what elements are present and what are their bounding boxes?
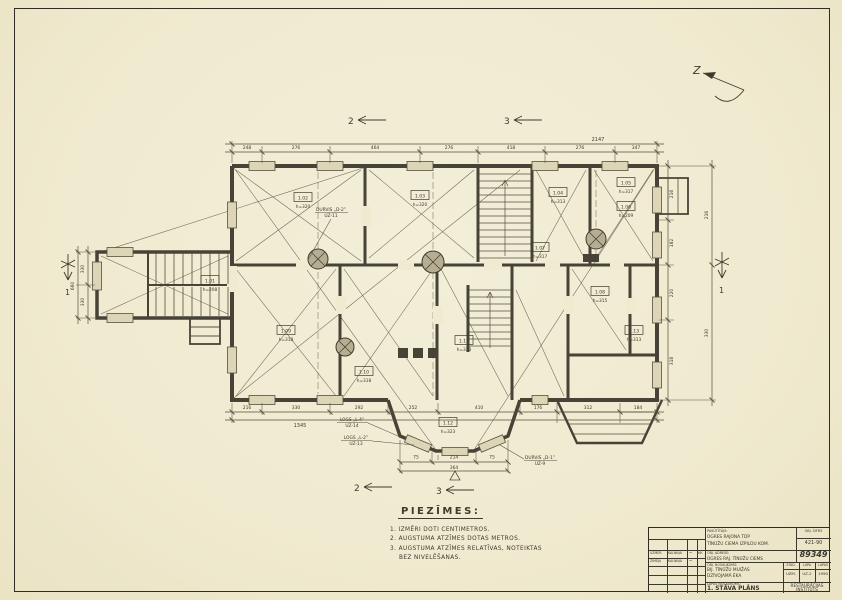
stair-lower [469,290,511,348]
room-label: 1.08h=315 [591,287,609,305]
note-line: BEZ NIVELĒŠANAS. [390,554,542,563]
svg-text:1: 1 [65,288,70,297]
dim-number: 176 [534,405,543,411]
dim-number: 220 [669,289,675,298]
stage-label: STAD. [783,564,799,567]
room-label: 1.03h=320 [411,191,429,209]
sig-name: KALNIŅA [668,560,682,563]
sheets-value: 1990 [815,572,831,576]
dim-number: 75 [489,455,495,461]
dim-number: 75 [413,455,419,461]
stoves [308,229,606,356]
title-block-divider [697,539,698,593]
dim-number: 216 [704,211,710,220]
dim-number: 248 [243,145,252,151]
archive-number: 89349 [796,551,831,559]
sheet-label: LAPA [799,564,815,567]
svg-text:UZ-13: UZ-13 [349,441,362,447]
dim-total: 364 [450,465,459,471]
sig-role: ZĪMĒJA [650,560,661,563]
svg-text:3: 3 [504,117,510,127]
stage-value: UZM. [783,572,799,576]
notes-list: 1. IZMĒRI DOTI CENTIMETROS. 2. AUGSTUMA … [390,526,542,563]
dim-number: 216 [243,405,252,411]
note-line: 2. AUGSTUMA ATZĪMES DOTAS METROS. [390,535,542,544]
dim-number: 330 [292,405,301,411]
notes-block: PIEZĪMES: 1. IZMĒRI DOTI CENTIMETROS. 2.… [390,499,542,563]
svg-text:DURVIS „D-1”: DURVIS „D-1” [525,455,555,461]
sheet-number: UZ-2 [799,572,815,576]
dim-number: 410 [475,405,484,411]
svg-text:3: 3 [436,487,442,497]
dim-number: 276 [292,145,301,151]
address-label: OBJ. ADRESE: [707,552,729,555]
object-label: OBJ. NOSAUKUMS: [707,564,737,567]
dim-numbers: 248 276 464 276 418 276 347 2147 216 330… [70,137,710,471]
svg-text:LOGS „L-4”: LOGS „L-4” [340,417,364,423]
sheets-label: LAPAS [815,564,831,567]
north-fletching-icon [715,90,744,101]
svg-text:UZ-14: UZ-14 [345,423,358,429]
sig-role: UZMĒR. [650,552,662,555]
stair-upper [479,174,531,258]
svg-text:2: 2 [348,117,354,127]
door-label-d1: DURVIS „D-1” UZ-9 [500,445,557,467]
exterior-walls [232,166,657,400]
drawing-title: 1. STĀVA PLĀNS [707,587,760,593]
sig-signature: ~ [689,559,692,563]
object-code-label: OBJ. ŠIFRS [796,530,831,533]
svg-text:UZ-11: UZ-11 [324,213,337,219]
svg-text:DURVIS „D-2”: DURVIS „D-2” [316,207,346,213]
title-block: UZMĒR. KALNIŅA ~ HK ZĪMĒJA KALNIŅA ~ PAS… [648,527,830,592]
svg-text:1: 1 [719,286,724,295]
room-label: 1.04h=313 [549,188,567,206]
client-label: PASŪTĪTĀJS: [707,530,728,533]
section-marker-bottom-3: 3 [436,486,474,497]
client-line1: OGRES RAJONA TDP [707,536,750,540]
dim-number: 182 [669,239,675,248]
svg-text:1.02: 1.02 [298,196,308,202]
svg-text:h=323: h=323 [441,429,456,435]
room-label: 1.06h=209 [617,202,635,220]
dim-number: 216 [669,190,675,199]
note-line: 3. AUGSTUMA ATZĪMES RELATĪVAS, NOTEIKTAS [390,545,542,554]
dim-chain-top [225,141,664,163]
dim-number: 347 [632,145,641,151]
svg-text:h=320: h=320 [296,204,311,210]
dim-number: 330 [704,329,710,338]
svg-text:1.05: 1.05 [621,181,631,187]
svg-text:1.07: 1.07 [535,246,545,252]
section-marker-right-1: 1 [715,252,729,295]
svg-text:h=313: h=313 [627,337,642,343]
svg-text:h=320: h=320 [413,202,428,208]
svg-text:1.12: 1.12 [443,421,453,427]
sig-name: KALNIŅA [668,552,682,555]
sig-date: HK [698,552,703,555]
svg-text:1.06: 1.06 [621,205,631,211]
room-label: 1.02h=320 [294,193,312,211]
room-label: 1.13h=313 [625,326,643,344]
svg-text:1.03: 1.03 [415,194,425,200]
address: OGRES RAJ. TĪNŪŽU CIEMS [707,557,763,561]
svg-text:1.13: 1.13 [629,329,639,335]
svg-text:h=323: h=323 [457,347,472,353]
svg-text:1.08: 1.08 [595,290,605,296]
dim-number: 292 [355,405,364,411]
section-marker-top-2: 2 [348,116,386,127]
svg-text:h=318: h=318 [357,378,372,384]
svg-text:1.01: 1.01 [205,279,215,285]
svg-text:h=313: h=313 [551,199,566,205]
dim-number: 252 [409,405,418,411]
sig-signature: ~ [689,551,692,555]
dim-number: 330 [80,298,86,307]
window-openings [93,162,662,456]
organization-line2: INSTITŪTS [783,588,831,592]
exterior-steps [190,318,220,344]
room-label: 1.11h=323 [455,336,473,354]
section-marker-bottom-2: 2 [354,483,392,494]
dim-chain-left [76,246,96,324]
dim-number: 276 [576,145,585,151]
dim-number: 312 [584,405,593,411]
svg-text:h=317: h=317 [533,254,548,260]
dim-number: 418 [507,145,516,151]
title-block-divider [783,569,831,570]
object-code: 421-90 [796,541,831,546]
dim-total: 660 [70,282,76,291]
svg-text:h=318: h=318 [279,337,294,343]
dim-number: 318 [669,357,675,366]
svg-text:1.10: 1.10 [359,370,369,376]
object-line1: BIJ. TĪNŪŽU MUIŽAS [707,569,750,573]
title-block-divider [705,528,706,593]
room-label: 1.05h=317 [617,178,635,196]
svg-text:1.04: 1.04 [553,191,563,197]
drawing-sheet: 248 276 464 276 418 276 347 2147 216 330… [0,0,842,600]
notes-heading: PIEZĪMES: [398,506,483,519]
title-block-divider [796,538,831,539]
room-label: 1.09h=318 [277,326,295,344]
object-line2: DZĪVOJAMĀ ĒKA [707,575,741,579]
north-label: Z [692,64,701,77]
dim-number: 276 [445,145,454,151]
svg-text:h=315: h=315 [593,298,608,304]
dim-number: 184 [634,405,643,411]
room-label: 1.10h=318 [355,367,373,385]
right-porch-steps [557,400,662,443]
svg-text:UZ-9: UZ-9 [535,461,546,467]
dim-total: 1345 [294,423,307,429]
svg-text:h=317: h=317 [619,189,634,195]
section-marker-top-3: 3 [504,116,542,127]
title-block-divider [667,539,668,593]
svg-text:1.11: 1.11 [459,339,469,345]
client-line2: TĪNŪŽU CIEMA IZPILDU KOM. [707,543,769,547]
dim-total: 2147 [592,137,605,143]
dim-number: 464 [371,145,380,151]
left-porch-walls [97,252,232,318]
interior-walls [232,166,657,400]
svg-text:LOGS „L-2”: LOGS „L-2” [344,435,368,441]
svg-text:2: 2 [354,484,360,494]
north-arrow: Z [692,64,744,101]
level-mark-icon [450,471,460,480]
dim-number: 214 [450,455,459,461]
svg-text:1.09: 1.09 [281,329,291,335]
note-line: 1. IZMĒRI DOTI CENTIMETROS. [390,526,542,535]
svg-text:h=208: h=208 [203,287,218,293]
title-block-divider [687,539,688,593]
room-label: 1.07h=317 [531,243,549,261]
svg-text:h=209: h=209 [619,213,634,219]
dim-number: 330 [80,265,86,274]
